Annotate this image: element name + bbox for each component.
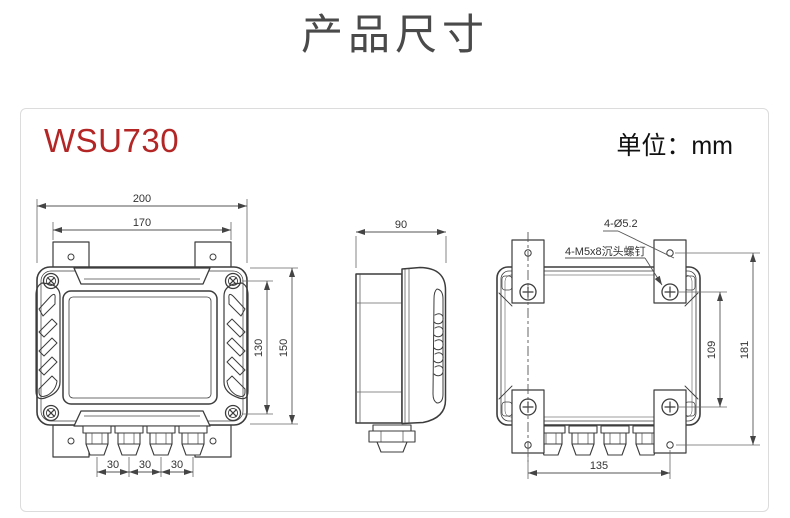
dim-gland-pitch: 30 30 30 (97, 457, 193, 477)
svg-text:200: 200 (133, 193, 151, 205)
technical-drawing: 200 170 130 150 (0, 0, 790, 518)
front-bottom-bar (74, 411, 210, 426)
svg-text:109: 109 (706, 341, 718, 359)
svg-text:150: 150 (278, 339, 290, 357)
svg-text:4-M5x8沉头螺钉: 4-M5x8沉头螺钉 (565, 245, 646, 258)
svg-text:90: 90 (395, 219, 407, 231)
side-front-slab (356, 274, 402, 423)
dim-side-depth: 90 (356, 219, 446, 268)
svg-text:4-Ø5.2: 4-Ø5.2 (604, 218, 638, 230)
side-view: 90 (356, 219, 446, 452)
cable-gland (569, 426, 597, 455)
svg-text:30: 30 (171, 459, 183, 471)
cable-gland (601, 426, 629, 455)
svg-text:135: 135 (590, 460, 608, 472)
svg-text:30: 30 (107, 459, 119, 471)
side-rear-cover (402, 268, 446, 424)
dim-front-bracket-width: 170 (53, 217, 231, 240)
svg-text:130: 130 (253, 339, 265, 357)
svg-text:30: 30 (139, 459, 151, 471)
cable-gland (147, 426, 175, 455)
side-cable-gland (369, 425, 415, 452)
svg-text:181: 181 (739, 341, 751, 359)
cable-gland (115, 426, 143, 455)
svg-text:170: 170 (133, 217, 151, 229)
front-view: 200 170 130 150 (36, 193, 298, 477)
rear-view: 4-Ø5.2 4-M5x8沉头螺钉 109 181 (497, 218, 760, 479)
front-top-bar (74, 268, 210, 284)
